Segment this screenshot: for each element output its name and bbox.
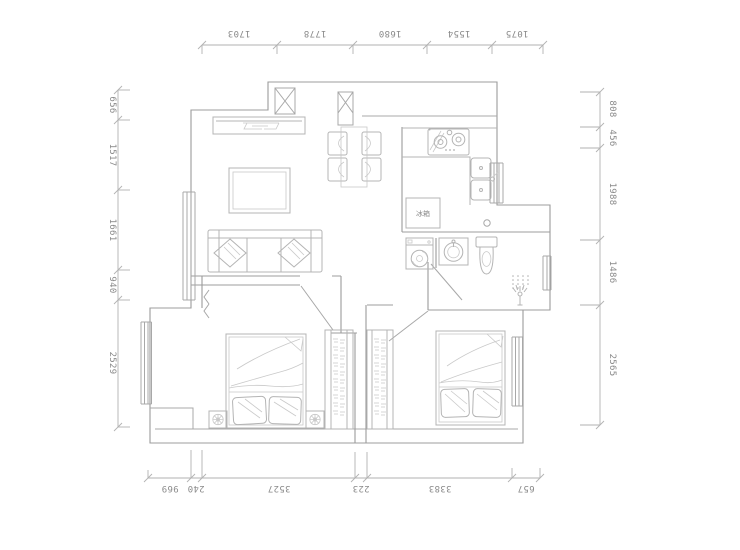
entry-door-knob-icon xyxy=(484,220,490,226)
dimension-right: 808 456 1988 1486 2565 xyxy=(580,88,617,429)
gas-stove-icon xyxy=(428,129,469,156)
door-bedroom-right xyxy=(389,311,428,341)
dim-top-2: 1778 xyxy=(304,28,327,38)
columns xyxy=(275,88,353,125)
throw-pillow-icon xyxy=(278,239,310,267)
double-bed xyxy=(436,331,505,425)
dim-bottom-2: 240 xyxy=(187,483,204,493)
fridge-label: 冰箱 xyxy=(416,209,430,218)
kitchen-counter xyxy=(402,128,497,205)
wardrobe xyxy=(325,330,353,429)
door-bathroom xyxy=(431,264,462,300)
pillow-icon xyxy=(232,396,266,425)
column-icon xyxy=(338,92,353,125)
dim-left-4: 940 xyxy=(107,276,117,293)
sofa xyxy=(208,230,322,272)
bedroom-right xyxy=(367,330,505,429)
dim-right-3: 1988 xyxy=(607,183,617,206)
pillow-icon xyxy=(269,396,302,424)
dim-left-5: 2529 xyxy=(107,352,117,375)
toilet-icon xyxy=(476,237,497,274)
hanger-marks-icon xyxy=(333,339,345,415)
living-room xyxy=(208,117,322,272)
dim-top-5: 1075 xyxy=(506,28,529,38)
floor-plan-screenshot: 1703 1778 1680 1554 1075 969 240 3527 22… xyxy=(0,0,740,550)
kitchen: 冰箱 xyxy=(402,128,498,228)
hanger-marks-icon xyxy=(374,339,386,415)
dimension-bottom: 969 240 3527 223 3383 657 xyxy=(144,450,544,493)
refrigerator: 冰箱 xyxy=(406,198,440,228)
dim-top-1: 1703 xyxy=(228,28,251,38)
dim-right-2: 456 xyxy=(607,129,617,146)
plant-icon xyxy=(213,414,224,425)
dim-bottom-6: 657 xyxy=(517,483,534,493)
bedroom-right-window xyxy=(512,337,523,406)
nightstand xyxy=(306,411,324,428)
dim-left-3: 1661 xyxy=(107,219,117,242)
double-bed xyxy=(226,334,306,428)
coffee-table xyxy=(229,168,290,213)
dim-top-4: 1554 xyxy=(448,28,471,38)
column-icon xyxy=(275,88,295,114)
plant-icon xyxy=(310,414,321,425)
wash-basin-icon xyxy=(439,238,468,265)
washing-machine-icon xyxy=(406,238,433,269)
bedroom-left xyxy=(209,330,353,429)
pillow-icon xyxy=(441,389,470,418)
bathroom xyxy=(406,237,529,305)
tv-icon xyxy=(243,123,279,129)
pillow-icon xyxy=(473,389,502,418)
dining-chair xyxy=(328,158,347,181)
dim-top-3: 1680 xyxy=(379,28,402,38)
floor-plan-drawing: 1703 1778 1680 1554 1075 969 240 3527 22… xyxy=(0,0,740,550)
dining-table xyxy=(341,127,367,187)
dining-area xyxy=(328,127,381,187)
nightstand xyxy=(209,411,227,428)
dining-chair xyxy=(362,158,381,181)
shower-icon xyxy=(512,275,529,305)
wall-break-icon xyxy=(204,290,209,318)
living-room-window xyxy=(183,192,195,300)
dim-bottom-5: 3383 xyxy=(429,483,452,493)
dim-left-2: 1517 xyxy=(107,144,117,167)
wardrobe xyxy=(367,330,393,429)
dim-left-1: 656 xyxy=(107,96,117,113)
dim-bottom-3: 3527 xyxy=(268,483,291,493)
dining-chair xyxy=(362,132,381,155)
dim-right-5: 2565 xyxy=(607,354,617,377)
door-bedroom-left xyxy=(301,286,333,330)
dimension-top: 1703 1778 1680 1554 1075 xyxy=(198,28,547,54)
tv-cabinet xyxy=(213,117,305,134)
dim-bottom-1: 969 xyxy=(161,483,178,493)
dim-right-4: 1486 xyxy=(607,261,617,284)
dim-right-1: 808 xyxy=(607,100,617,117)
dimension-left: 656 1517 1661 940 2529 xyxy=(107,86,130,431)
dining-chair xyxy=(328,132,347,155)
dim-bottom-4: 223 xyxy=(352,483,369,493)
